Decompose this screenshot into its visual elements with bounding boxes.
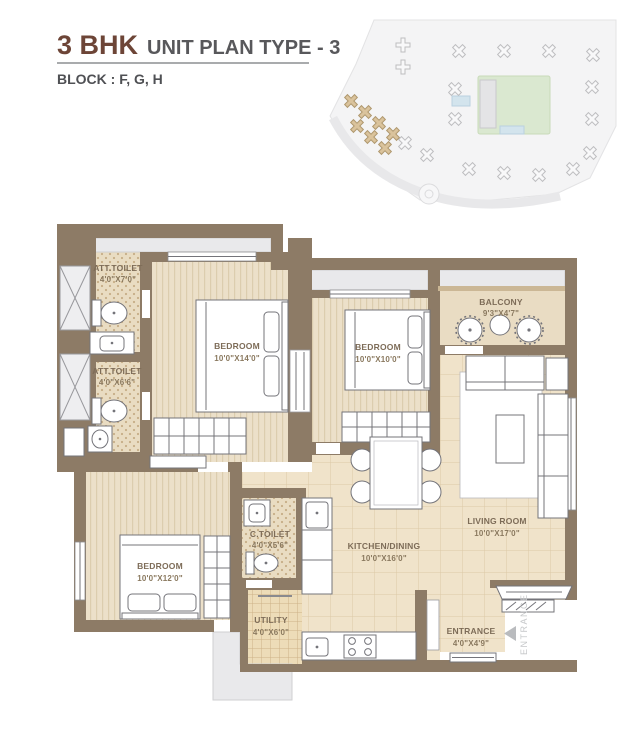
room-dims-att-toilet-2: 4'0"X6'6" — [99, 378, 135, 387]
console-table-icon — [496, 586, 572, 599]
void-strip-bedroom-2 — [305, 270, 428, 290]
unit-floor-plan: ATT.TOILET 4'0"X7'0" BEDROOM 10'0"X14'0"… — [57, 224, 577, 700]
room-dims-att-toilet-1: 4'0"X7'0" — [100, 275, 136, 284]
dresser-icon — [150, 456, 206, 468]
header: 3 BHK UNIT PLAN TYPE - 3 BLOCK : F, G, H — [57, 30, 340, 87]
floor-plan-sheet: 3 BHK UNIT PLAN TYPE - 3 BLOCK : F, G, H — [0, 0, 621, 738]
window-icon — [330, 290, 410, 298]
washbasin-icon — [244, 500, 270, 526]
c-toilet-door — [246, 580, 272, 588]
site-pool — [452, 96, 470, 106]
room-label-att-toilet-1: ATT.TOILET — [93, 263, 143, 273]
wall-segment — [240, 590, 248, 664]
block-label: BLOCK : F, G, H — [57, 71, 163, 87]
room-label-att-toilet-2: ATT.TOILET — [92, 366, 142, 376]
void-strip-balcony — [438, 270, 565, 288]
site-pool-2 — [500, 126, 524, 134]
room-dims-balcony: 9'3"X4'7" — [483, 309, 519, 318]
site-clubhouse — [480, 80, 496, 128]
wall-segment — [74, 620, 214, 632]
bedroom-2-door — [316, 443, 340, 454]
room-dims-bedroom-3: 10'0"X12'0" — [137, 574, 183, 583]
entrance-threshold — [450, 653, 496, 662]
wall-segment — [88, 452, 140, 462]
hob-icon — [344, 635, 376, 658]
page-title-main: 3 BHK — [57, 30, 139, 60]
att-toilet-1-door — [142, 290, 150, 318]
room-dims-kitchen-dining: 10'0"X16'0" — [361, 554, 407, 563]
balcony-railing — [438, 286, 565, 291]
balcony-door — [445, 346, 483, 354]
kitchen-door-leaf — [427, 600, 439, 650]
wc-icon — [92, 300, 127, 326]
room-label-bedroom-2: BEDROOM — [355, 342, 401, 352]
room-dims-living-room: 10'0"X17'0" — [474, 529, 520, 538]
kitchen-counter-icon — [302, 498, 332, 594]
site-map — [330, 20, 616, 204]
wc-icon — [92, 398, 127, 424]
entrance-arrow-icon — [504, 626, 516, 641]
entrance-side-label: ENTRANCE — [519, 593, 529, 655]
wall-segment — [57, 224, 283, 238]
room-dims-utility: 4'0"X6'0" — [253, 628, 289, 637]
shaft-x-icon — [60, 354, 90, 420]
coffee-table-icon — [496, 415, 524, 463]
sofa-icon — [466, 356, 544, 390]
room-label-c-toilet: C.TOILET — [250, 529, 291, 539]
wall-segment — [234, 488, 306, 498]
room-label-living-room: LIVING ROOM — [467, 516, 526, 526]
att-toilet-2-door — [142, 392, 150, 420]
sink-icon — [306, 502, 328, 528]
sofa-icon — [538, 394, 568, 518]
room-dims-entrance: 4'0"X4'9" — [453, 639, 489, 648]
washbasin-icon — [88, 426, 112, 452]
sofa-set-icon — [460, 356, 568, 518]
wall-segment — [415, 590, 427, 660]
room-dims-c-toilet: 4'0"X5'6" — [252, 541, 288, 550]
window-icon — [75, 542, 85, 600]
room-label-bedroom-1: BEDROOM — [214, 341, 260, 351]
shaft-x-icon — [60, 266, 90, 330]
wall-segment — [240, 664, 302, 672]
room-dims-bedroom-2: 10'0"X10'0" — [355, 355, 401, 364]
wardrobe-icon — [154, 418, 246, 454]
site-roundabout — [419, 184, 439, 204]
wardrobe-icon — [204, 536, 230, 618]
kitchen-counter-icon — [302, 632, 416, 660]
room-label-balcony: BALCONY — [479, 297, 523, 307]
page-title-rest: UNIT PLAN TYPE - 3 — [147, 37, 340, 59]
wc-icon — [246, 552, 278, 574]
duct-icon — [64, 428, 84, 456]
utility-floor — [248, 590, 302, 664]
room-label-bedroom-3: BEDROOM — [137, 561, 183, 571]
balcony-table-icon — [490, 315, 510, 335]
room-dims-bedroom-1: 10'0"X14'0" — [214, 354, 260, 363]
wall-segment — [302, 660, 577, 672]
void-strip-top-left — [69, 238, 271, 252]
bedroom-doors — [290, 350, 310, 412]
room-label-entrance: ENTRANCE — [447, 626, 496, 636]
washbasin-icon — [90, 332, 134, 354]
side-table-icon — [546, 358, 568, 390]
title-underline — [57, 62, 309, 64]
room-label-utility: UTILITY — [254, 615, 288, 625]
room-label-kitchen-dining: KITCHEN/DINING — [348, 541, 421, 551]
window-icon — [168, 252, 256, 261]
